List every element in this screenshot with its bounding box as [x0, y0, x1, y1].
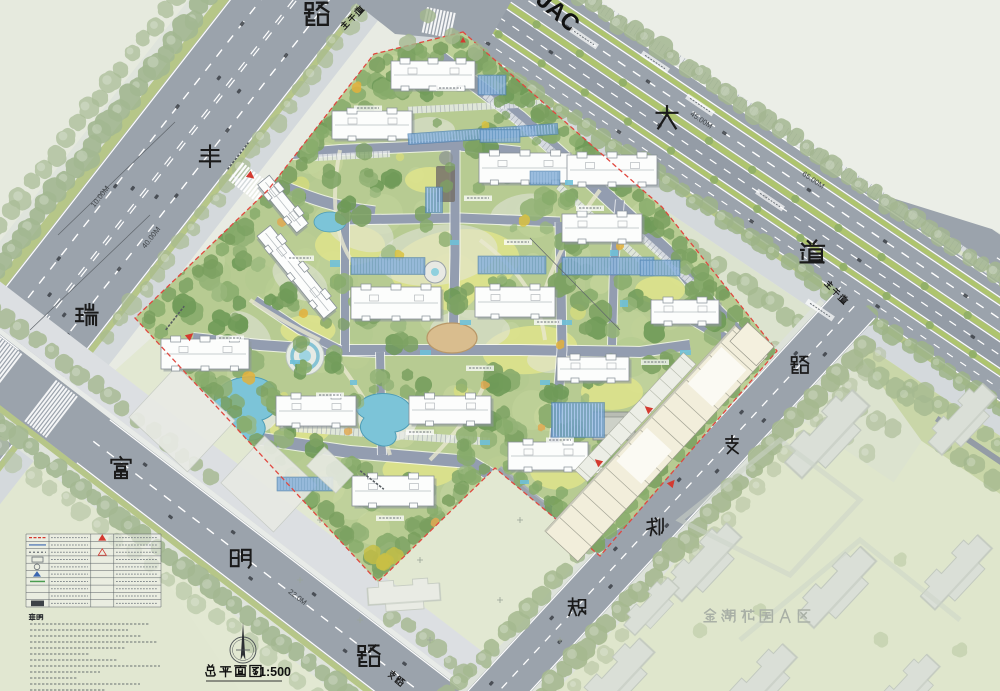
- svg-text:1:500: 1:500: [259, 665, 291, 679]
